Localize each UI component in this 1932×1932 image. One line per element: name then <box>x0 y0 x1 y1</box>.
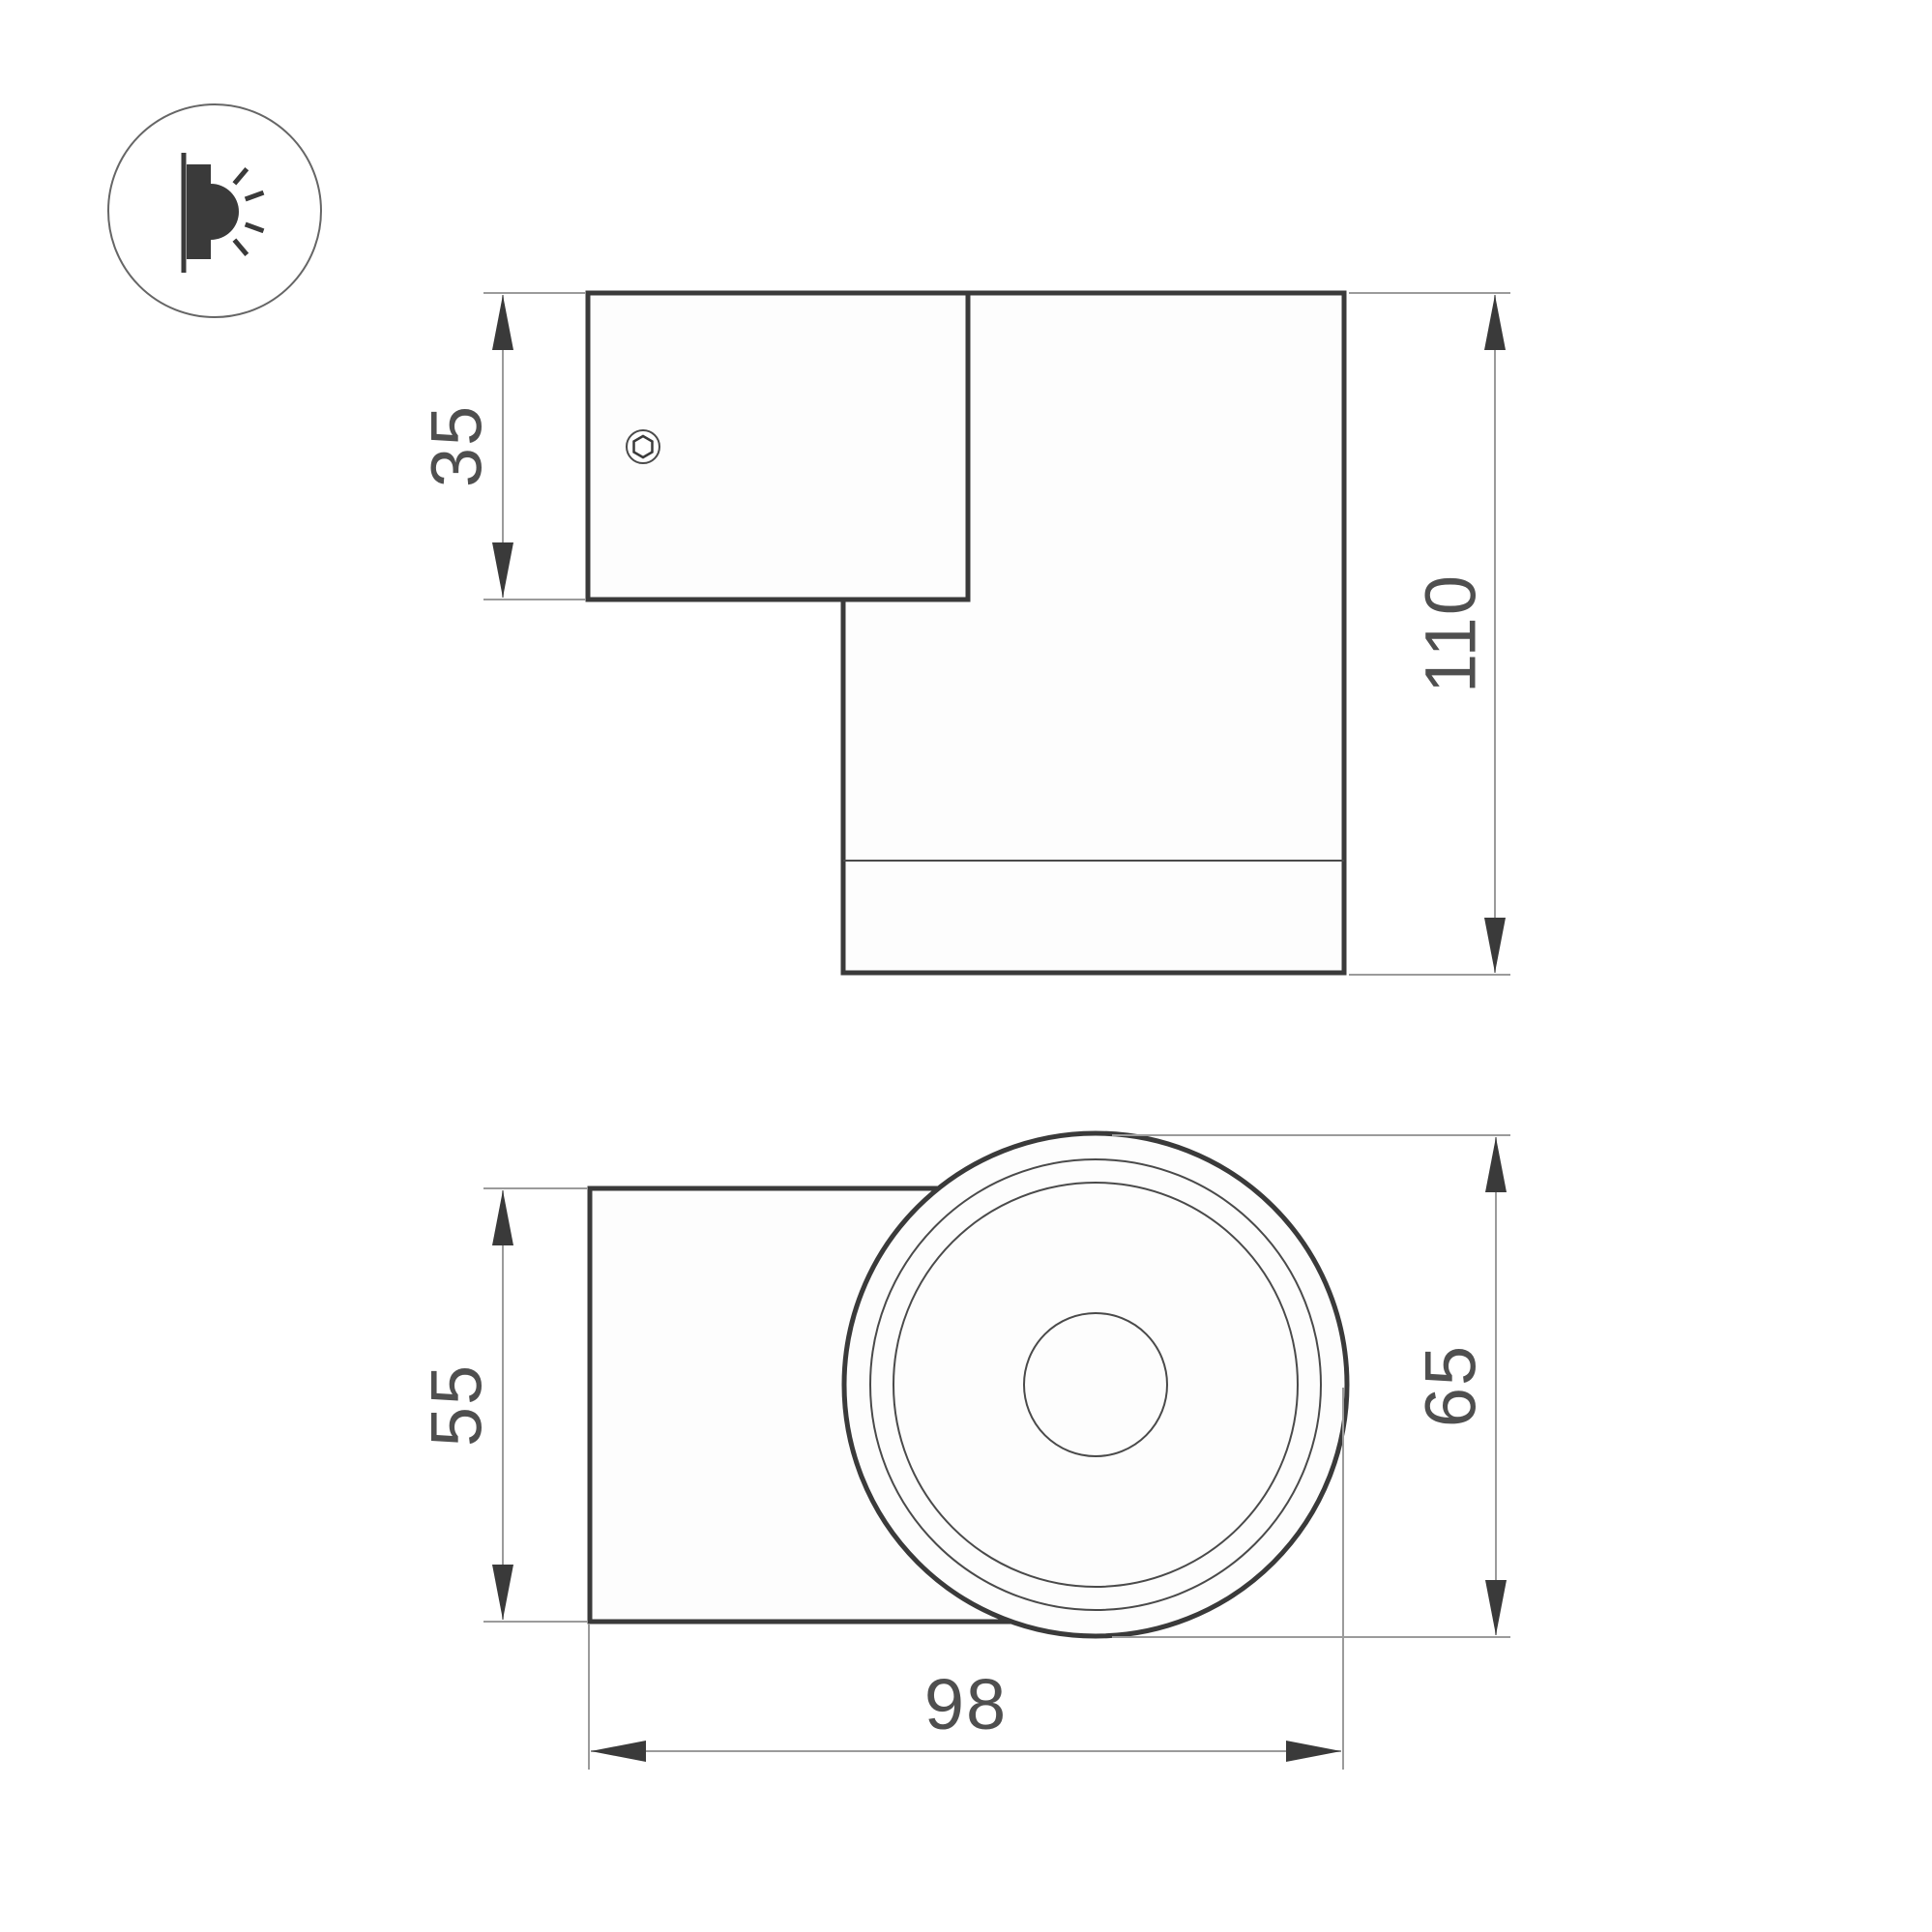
dimension-label-35: 35 <box>417 404 497 487</box>
arrowhead-down-icon <box>1485 1580 1507 1635</box>
dimension-body-55: 55 <box>417 1188 589 1622</box>
dimension-label-55: 55 <box>417 1363 497 1447</box>
arrowhead-down-icon <box>492 542 513 598</box>
arrowhead-left-icon <box>591 1741 646 1762</box>
dimension-label-65: 65 <box>1411 1344 1491 1427</box>
arrowhead-right-icon <box>1286 1741 1341 1762</box>
dimension-plate-35: 35 <box>417 293 587 600</box>
arrowhead-up-icon <box>492 1190 513 1245</box>
arrowhead-up-icon <box>1485 1137 1507 1192</box>
wall-light-type-icon <box>108 104 321 317</box>
arrowhead-up-icon <box>492 295 513 350</box>
dimension-label-98: 98 <box>924 1664 1008 1744</box>
arrowhead-down-icon <box>1484 918 1506 973</box>
front-view <box>590 1133 1347 1636</box>
lamp-body-icon <box>187 164 211 259</box>
dimension-label-110: 110 <box>1411 573 1491 693</box>
arrowhead-down-icon <box>492 1565 513 1620</box>
screw-head-icon <box>627 430 659 463</box>
side-view <box>588 293 1344 973</box>
dimension-height-110: 110 <box>1349 293 1510 975</box>
technical-drawing: 35 110 55 65 <box>0 0 1932 1932</box>
arrowhead-up-icon <box>1484 295 1506 350</box>
front-view-bezel-outer <box>844 1133 1347 1636</box>
